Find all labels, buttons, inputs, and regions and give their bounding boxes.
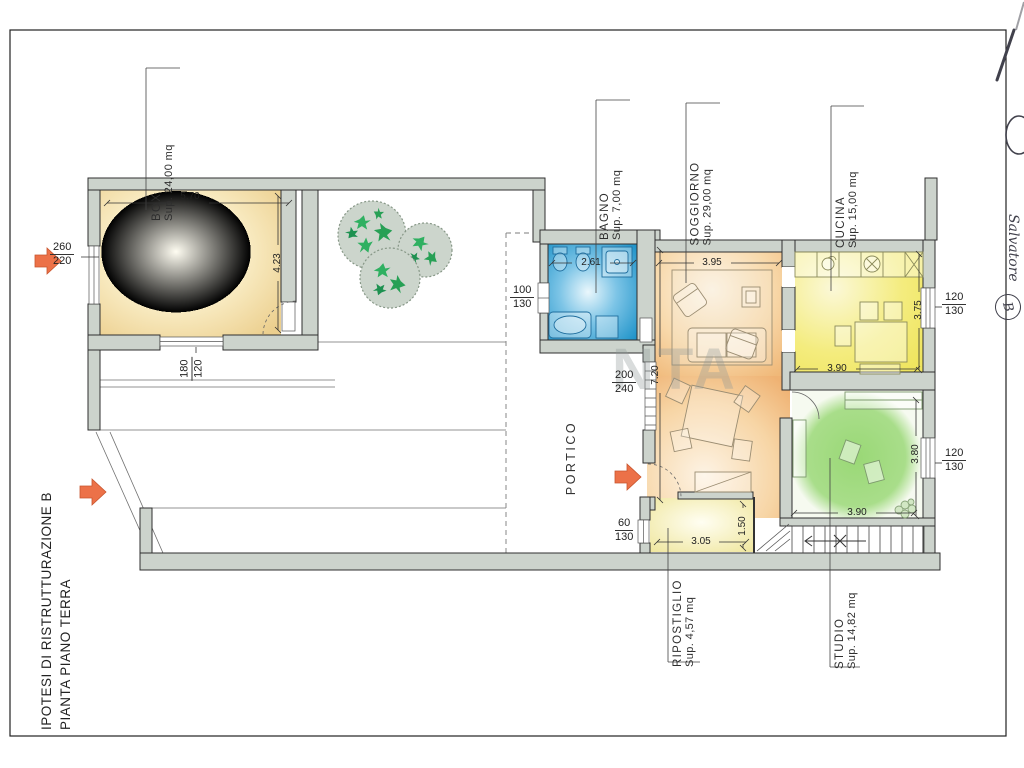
scanned-floor-plan-sheet: NTA IPOTESI DI RISTRUTTURAZIONE B PIANTA… [0, 0, 1024, 768]
opening-width: 60 [615, 517, 633, 531]
room-name: STUDIO [834, 571, 846, 669]
chair-icon [732, 439, 753, 461]
chair-icon [860, 302, 878, 320]
arrow-icon-entrance [615, 464, 641, 490]
desk-icon [845, 392, 922, 409]
handwritten-name: Salvatore [1003, 214, 1021, 298]
opening-height: 130 [612, 531, 636, 544]
dim-studio-width: 3.90 [839, 507, 875, 519]
label-cucina: CUCINA Sup. 15,00 mq [832, 98, 862, 248]
courtyard-lines [95, 342, 506, 553]
opening-soggiorno-door-size: 200 240 [612, 369, 636, 396]
room-name: SOGGIORNO [690, 91, 702, 246]
studio-window [921, 438, 935, 478]
opening-width: 120 [942, 447, 966, 461]
dim-cucina-width: 3.90 [819, 363, 855, 375]
opening-ripostiglio-window-size: 60 130 [612, 517, 636, 544]
dim-soggiorno-depth: 7.20 [650, 357, 662, 393]
opening-width: 120 [942, 291, 966, 305]
arrow-icon-courtyard [80, 479, 106, 505]
room-name: BAGNO [599, 90, 611, 240]
room-fill-box [100, 190, 281, 337]
tree-canopies [338, 201, 452, 308]
soggiorno-cucina-doorway [782, 330, 795, 352]
pen-oval [1006, 116, 1024, 154]
box-courtyard-door [282, 302, 295, 331]
dim-box-depth: 4.23 [272, 245, 284, 281]
pen-marks [997, 2, 1024, 154]
opening-studio-window-size: 120 130 [942, 447, 966, 474]
page-title: IPOTESI DI RISTRUTTURAZIONE B PIANTA PIA… [38, 450, 74, 730]
dim-ripostiglio-depth: 1.50 [737, 508, 749, 544]
label-studio: STUDIO Sup. 14,82 mq [831, 571, 861, 669]
dim-soggiorno-width: 3.95 [694, 257, 730, 269]
opening-box-door-size: 180 120 [178, 357, 205, 381]
tree-icon [360, 248, 420, 308]
opening-width: 260 [50, 241, 74, 255]
opening-height: 130 [510, 298, 534, 311]
title-line-1: IPOTESI DI RISTRUTTURAZIONE B [38, 450, 57, 730]
label-ripostiglio: RIPOSTIGLIO Sup. 4,57 mq [669, 559, 699, 667]
dim-studio-depth: 3.80 [910, 436, 922, 472]
room-name: CUCINA [835, 98, 847, 248]
opening-bagno-window-size: 100 130 [510, 284, 534, 311]
chair-icon [670, 428, 692, 451]
title-line-2: PIANTA PIANO TERRA [57, 450, 76, 730]
dim-cucina-depth: 3.75 [913, 292, 925, 328]
opening-garage-door-size: 260 220 [50, 241, 74, 268]
room-area: Sup. 4,57 mq [684, 559, 696, 667]
room-area: Sup. 29,00 mq [702, 91, 714, 246]
shelf-icon [793, 420, 806, 477]
dim-ripostiglio-width: 3.05 [683, 536, 719, 548]
soggiorno-cucina-doorway [782, 267, 795, 287]
opening-height: 130 [942, 461, 966, 474]
opening-height: 240 [612, 383, 636, 396]
opening-width: 200 [612, 369, 636, 383]
dim-bagno-width: 2.61 [573, 257, 609, 269]
kitchen-counter [795, 252, 923, 277]
opening-height: 220 [50, 255, 74, 268]
sink-icon [822, 258, 834, 270]
room-area: Sup. 15,00 mq [847, 98, 859, 248]
opening-height: 120 [193, 357, 206, 381]
chair-icon [835, 326, 851, 346]
opening-width: 100 [510, 284, 534, 298]
room-area: Sup. 7,00 mq [611, 90, 623, 240]
room-area: Sup. 14,82 mq [846, 571, 858, 669]
bagno-cabinet [596, 316, 618, 338]
dim-box-width: 5.70 [172, 191, 208, 203]
sideboard-icon [695, 472, 751, 492]
label-portico: PORTICO [564, 413, 580, 503]
room-name: RIPOSTIGLIO [672, 559, 684, 667]
opening-width: 180 [178, 357, 192, 381]
opening-height: 130 [942, 305, 966, 318]
label-bagno: BAGNO Sup. 7,00 mq [596, 90, 626, 240]
room-name: BOX [151, 69, 163, 221]
understair-hatch [757, 524, 790, 551]
pen-stroke [1016, 2, 1024, 30]
kitchen-table [855, 322, 907, 362]
label-soggiorno: SOGGIORNO Sup. 29,00 mq [687, 91, 717, 246]
portico-boundary-dashed [506, 233, 540, 553]
opening-cucina-window-size: 120 130 [942, 291, 966, 318]
chair-icon [884, 302, 902, 320]
